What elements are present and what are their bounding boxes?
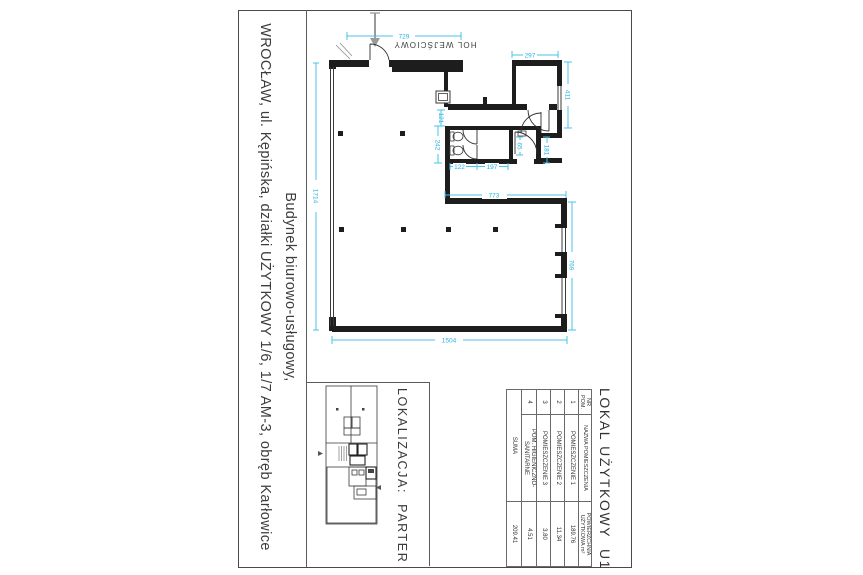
dim-niche-height: 181 — [543, 145, 550, 156]
key-plan-core — [344, 417, 360, 435]
row4-area: 4.51 — [522, 502, 537, 567]
row3-name: POMIESZCZENIE 3 — [536, 415, 550, 502]
header-name: NAZWA POMIESZCZENIA — [578, 415, 591, 502]
header-nr: NR POM. — [578, 390, 591, 415]
localization-label: LOKALIZACJA: PARTER — [386, 388, 418, 556]
row3-nr: 3 — [536, 390, 550, 415]
total-value: 209.41 — [507, 502, 522, 567]
key-plan-mid-rooms — [349, 444, 367, 465]
localization-block: LOKALIZACJA: PARTER — [386, 388, 418, 556]
key-plan-stairs — [339, 446, 347, 461]
area-table: NR POM. NAZWA POMIESZCZENIA POWIERZCHNIA… — [506, 389, 592, 567]
row2-name: POMIESZCZENIE 2 — [550, 415, 564, 502]
table-total-row: SUMA 209.41 — [507, 390, 522, 567]
table-row: 4 POM. HIGIENICZNO-SANITARNE 4.51 — [522, 390, 537, 567]
columns — [338, 131, 498, 232]
floor-plan: HOL WEJŚCIOWY — [306, 10, 631, 382]
dim-left: 1714 — [312, 189, 319, 204]
dim-stall-block: 242 — [434, 140, 441, 151]
project-title-line2: WROCŁAW, ul. Kępińska, działki UŻYTKOWY … — [252, 22, 277, 552]
project-title-block: Budynek biurowo-usługowy, WROCŁAW, ul. K… — [250, 22, 302, 552]
table-row: 2 POMIESZCZENIE 2 11.34 — [550, 390, 564, 567]
row1-name: POMIESZCZENIE 1 — [564, 415, 578, 502]
utility-box — [436, 91, 450, 103]
dim-room2-height: 411 — [564, 90, 571, 101]
table-row: 1 POMIESZCZENIE 1 189.76 — [564, 390, 578, 567]
dim-opening: 121 — [437, 113, 444, 124]
table-row: 3 POMIESZCZENIE 3 3.80 — [536, 390, 550, 567]
drawing-sheet: Budynek biurowo-usługowy, WROCŁAW, ul. K… — [0, 0, 863, 575]
header-area: POWIERZCHNIA UŻYTKOWA m² — [578, 502, 591, 567]
row4-name: POM. HIGIENICZNO-SANITARNE — [522, 415, 537, 502]
dim-bottom: 1504 — [442, 338, 457, 345]
row2-area: 11.34 — [550, 502, 564, 567]
row1-area: 189.76 — [564, 502, 578, 567]
entrance-arrow-icon — [370, 13, 380, 47]
hall-marks — [336, 43, 352, 59]
project-title-line1: Budynek biurowo-usługowy, — [277, 22, 302, 552]
dim-room2-width: 297 — [525, 53, 536, 60]
area-table-title: LOKAL UŻYTKOWY U1 — [592, 388, 616, 560]
dim-niche-width: 65 — [516, 142, 523, 150]
dim-right-lower: 769 — [568, 260, 575, 271]
table-header-row: NR POM. NAZWA POMIESZCZENIA POWIERZCHNIA… — [578, 390, 591, 567]
area-table-block: LOKAL UŻYTKOWY U1 NR POM. NAZWA POMIESZC… — [504, 388, 616, 560]
dim-stall-width2: 197 — [487, 164, 498, 171]
total-label: SUMA — [507, 390, 522, 502]
row1-nr: 1 — [564, 390, 578, 415]
row3-area: 3.80 — [536, 502, 550, 567]
dim-entry: 729 — [399, 34, 410, 41]
dim-inner: 773 — [489, 193, 500, 200]
dim-stall-width: 122 — [454, 164, 465, 171]
row4-nr: 4 — [522, 390, 537, 415]
row2-nr: 2 — [550, 390, 564, 415]
key-plan-entry-arrow-icon — [318, 451, 323, 456]
hall-room-label: HOL WEJŚCIOWY — [393, 40, 476, 49]
